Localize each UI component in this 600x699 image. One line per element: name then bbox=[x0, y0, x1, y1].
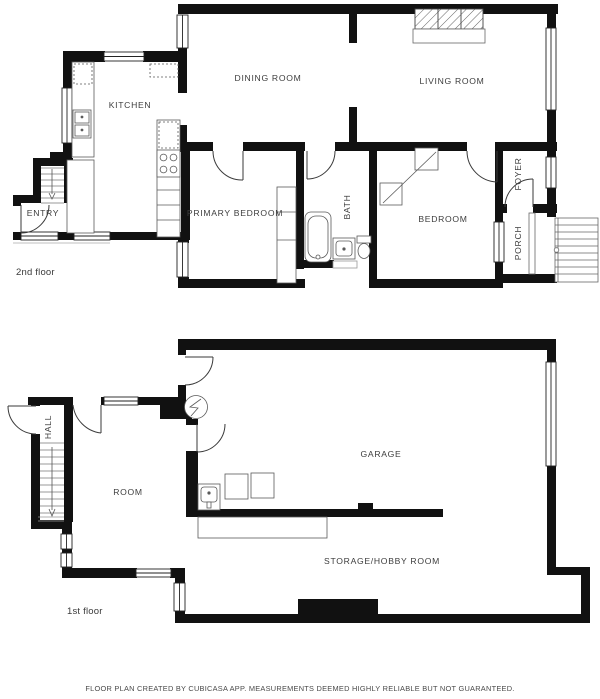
room-label-primary-bedroom: PRIMARY BEDROOM bbox=[187, 208, 283, 218]
fireplace-icon bbox=[413, 9, 485, 43]
bath-sink-icon bbox=[333, 238, 355, 259]
door-primary-bedroom bbox=[213, 151, 243, 180]
room-label-storage-hobby-room: STORAGE/HOBBY ROOM bbox=[324, 556, 440, 566]
door-bath bbox=[307, 151, 335, 179]
window-icon bbox=[177, 15, 188, 48]
exterior-stairs bbox=[554, 218, 598, 282]
bathtub-icon bbox=[305, 212, 331, 262]
window-icon bbox=[546, 362, 556, 466]
stairs-second-floor bbox=[41, 168, 64, 203]
stairs-first-floor bbox=[38, 443, 64, 521]
primary-bedroom-closet bbox=[277, 187, 296, 283]
footer-disclaimer: FLOOR PLAN CREATED BY CUBICASA APP. MEAS… bbox=[0, 684, 600, 693]
window-icon bbox=[61, 553, 72, 567]
stair-direction-arrow bbox=[49, 169, 55, 199]
floor-plan-drawing bbox=[0, 0, 600, 699]
kitchen-counter-lower bbox=[67, 160, 94, 233]
room-label-room: ROOM bbox=[113, 487, 143, 497]
room-label-garage: GARAGE bbox=[361, 449, 402, 459]
door-garage-exterior bbox=[185, 357, 213, 385]
second-floor-plan bbox=[13, 4, 598, 288]
window-icon bbox=[104, 52, 144, 61]
window-icon bbox=[104, 397, 138, 405]
window-icon bbox=[546, 28, 556, 110]
floor-label-2nd: 2nd floor bbox=[16, 267, 55, 278]
door-hall-exterior bbox=[8, 406, 36, 434]
door-bedroom bbox=[467, 151, 497, 182]
appliance-icon bbox=[225, 474, 248, 499]
upper-cabinet-dashed bbox=[159, 122, 178, 148]
floor-label-1st: 1st floor bbox=[67, 606, 103, 617]
kitchen-sink-icon bbox=[73, 110, 91, 138]
utility-sink-icon bbox=[198, 484, 220, 510]
floor-plan-page: KITCHEN DINING ROOM LIVING ROOM PRIMARY … bbox=[0, 0, 600, 699]
room-label-porch: PORCH bbox=[513, 226, 523, 261]
bath-fixtures bbox=[305, 212, 371, 268]
upper-cabinet-dashed bbox=[150, 64, 178, 77]
room-label-bath: BATH bbox=[342, 194, 352, 219]
room-label-kitchen: KITCHEN bbox=[109, 100, 152, 110]
door-room-garage bbox=[197, 424, 225, 452]
room-label-entry: ENTRY bbox=[27, 208, 59, 218]
kitchen-fixtures bbox=[67, 62, 180, 237]
room-label-hall: HALL bbox=[43, 415, 53, 439]
electrical-panel-icon bbox=[185, 396, 208, 419]
window-icon bbox=[136, 569, 171, 577]
door-hall-room bbox=[73, 405, 101, 433]
room-label-bedroom: BEDROOM bbox=[418, 214, 467, 224]
window-icon bbox=[62, 88, 72, 143]
window-icon bbox=[21, 232, 58, 240]
room-label-foyer: FOYER bbox=[513, 157, 523, 190]
toilet-icon bbox=[357, 236, 371, 259]
room-label-dining-room: DINING ROOM bbox=[235, 73, 302, 83]
window-icon bbox=[61, 534, 72, 549]
bedroom-corner-closet bbox=[380, 148, 438, 205]
window-icon bbox=[546, 157, 556, 188]
room-label-living-room: LIVING ROOM bbox=[420, 76, 485, 86]
first-floor-fixtures bbox=[185, 396, 328, 539]
workbench-counter bbox=[198, 517, 327, 538]
bath-threshold bbox=[333, 261, 357, 268]
first-floor-plan bbox=[8, 339, 590, 623]
window-icon bbox=[174, 583, 185, 611]
upper-cabinet-dashed bbox=[74, 64, 92, 84]
window-icon bbox=[494, 222, 504, 262]
window-icon bbox=[177, 242, 188, 277]
appliance-icon bbox=[251, 473, 274, 498]
stove-icon bbox=[157, 150, 180, 177]
first-floor-walls bbox=[28, 339, 590, 623]
